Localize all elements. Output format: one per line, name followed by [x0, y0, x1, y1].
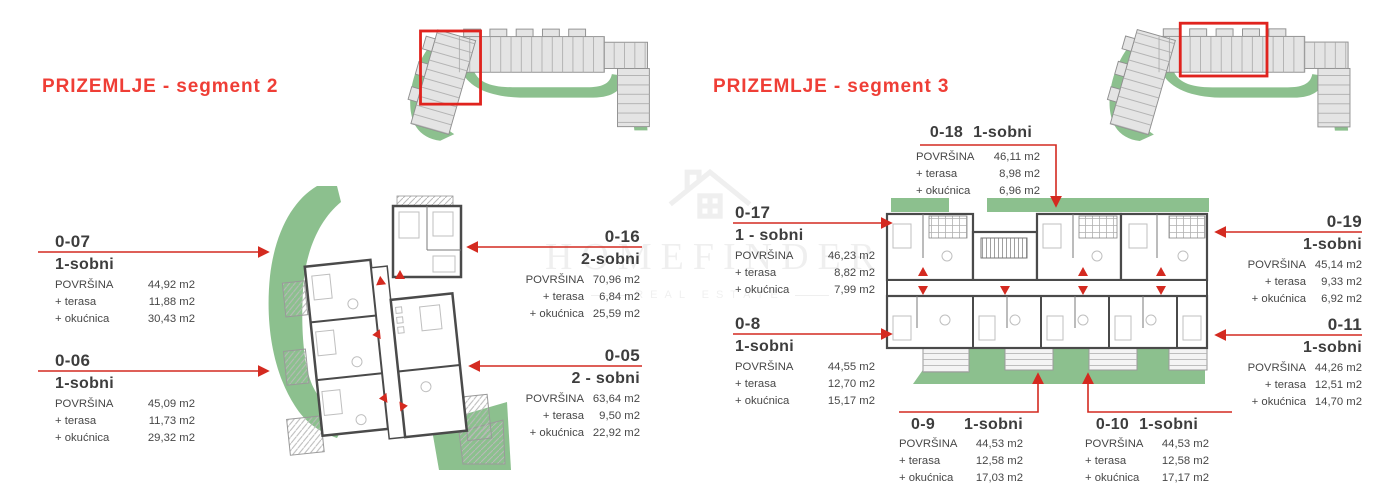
area-value: 6,96 m2 [988, 185, 1040, 198]
unit-areas: POVRŠINA44,53 m2 + terasa12,58 m2 + okuć… [899, 438, 1023, 485]
area-label: + terasa [1228, 379, 1306, 392]
area-label: POVRŠINA [55, 279, 137, 292]
unit-type: 1 - sobni [735, 227, 895, 244]
area-label: POVRŠINA [735, 361, 817, 374]
unit-card-0-05: 0-05 2 - sobni POVRŠINA63,64 m2 + terasa… [492, 347, 640, 440]
area-label: + okućnica [735, 395, 817, 408]
unit-areas: POVRŠINA46,11 m2 + terasa8,98 m2 + okućn… [916, 151, 1046, 198]
unit-type: 1-sobni [973, 124, 1032, 142]
unit-card-0-18: 0-18 1-sobni POVRŠINA46,11 m2 + terasa8,… [916, 124, 1046, 198]
area-value: 15,17 m2 [817, 395, 875, 408]
area-label: + terasa [506, 410, 584, 423]
area-value: 14,70 m2 [1306, 396, 1362, 409]
unit-type: 2-sobni [492, 251, 640, 268]
apartment-cluster [271, 249, 492, 459]
area-label: + terasa [506, 291, 584, 304]
area-value: 44,92 m2 [137, 279, 195, 292]
unit-title: 0-9 1-sobni [899, 416, 1023, 434]
area-label: + terasa [735, 378, 817, 391]
area-value: 63,64 m2 [584, 393, 640, 406]
unit-card-0-10: 0-10 1-sobni POVRŠINA44,53 m2 + terasa12… [1085, 416, 1209, 485]
unit-id: 0-11 [1214, 316, 1362, 334]
unit-id: 0-9 [911, 416, 935, 434]
unit-id: 0-17 [735, 204, 895, 222]
floor-plan-segment2 [253, 180, 513, 476]
unit-areas: POVRŠINA44,55 m2 + terasa12,70 m2 + okuć… [735, 361, 895, 408]
unit-areas: POVRŠINA45,14 m2 + terasa9,33 m2 + okućn… [1214, 259, 1362, 306]
area-label: + okućnica [506, 308, 584, 321]
unit-areas: POVRŠINA63,64 m2 + terasa9,50 m2 + okućn… [492, 393, 640, 440]
unit-type: 1-sobni [964, 416, 1023, 434]
unit-id: 0-8 [735, 315, 895, 333]
area-label: + terasa [735, 267, 817, 280]
area-label: POVRŠINA [506, 393, 584, 406]
area-label: + terasa [899, 455, 971, 468]
site-plan-thumbnail-segment2 [398, 10, 670, 142]
staircase [981, 238, 1027, 258]
area-label: + terasa [55, 415, 137, 428]
unit-card-0-8: 0-8 1-sobni POVRŠINA44,55 m2 + terasa12,… [735, 315, 895, 408]
area-label: POVRŠINA [899, 438, 971, 451]
unit-card-0-19: 0-19 1-sobni POVRŠINA45,14 m2 + terasa9,… [1214, 213, 1362, 306]
area-label: POVRŠINA [506, 274, 584, 287]
unit-card-0-11: 0-11 1-sobni POVRŠINA44,26 m2 + terasa12… [1214, 316, 1362, 409]
area-label: POVRŠINA [916, 151, 988, 164]
area-value: 45,09 m2 [137, 398, 195, 411]
area-value: 25,59 m2 [584, 308, 640, 321]
unit-title: 0-18 1-sobni [916, 124, 1046, 142]
area-value: 22,92 m2 [584, 427, 640, 440]
apartment-top-right [393, 196, 461, 279]
unit-card-0-16: 0-16 2-sobni POVRŠINA70,96 m2 + terasa6,… [492, 228, 640, 321]
unit-areas: POVRŠINA70,96 m2 + terasa6,84 m2 + okućn… [492, 274, 640, 321]
area-label: + terasa [916, 168, 988, 181]
unit-areas: POVRŠINA44,26 m2 + terasa12,51 m2 + okuć… [1214, 362, 1362, 409]
area-value: 46,23 m2 [817, 250, 875, 263]
area-label: POVRŠINA [1228, 362, 1306, 375]
area-value: 44,53 m2 [971, 438, 1023, 451]
area-value: 6,84 m2 [584, 291, 640, 304]
area-value: 8,82 m2 [817, 267, 875, 280]
section-title-segment2: PRIZEMLJE - segment 2 [42, 76, 278, 98]
area-value: 12,58 m2 [1157, 455, 1209, 468]
floor-plan-segment3 [883, 198, 1218, 398]
area-label: + terasa [1085, 455, 1157, 468]
area-label: POVRŠINA [735, 250, 817, 263]
unit-type: 1-sobni [735, 338, 895, 355]
unit-type: 1-sobni [55, 256, 215, 273]
unit-card-0-07: 0-07 1-sobni POVRŠINA44,92 m2 + terasa11… [55, 233, 215, 326]
unit-title: 0-10 1-sobni [1085, 416, 1209, 434]
area-value: 44,55 m2 [817, 361, 875, 374]
area-label: + okućnica [899, 472, 971, 485]
unit-areas: POVRŠINA46,23 m2 + terasa8,82 m2 + okućn… [735, 250, 895, 297]
unit-id: 0-18 [930, 124, 963, 142]
area-label: POVRŠINA [1228, 259, 1306, 272]
section-title-segment3: PRIZEMLJE - segment 3 [713, 76, 949, 98]
area-label: + okućnica [506, 427, 584, 440]
area-value: 17,17 m2 [1157, 472, 1209, 485]
area-value: 45,14 m2 [1306, 259, 1362, 272]
area-value: 11,88 m2 [137, 296, 195, 309]
area-value: 6,92 m2 [1306, 293, 1362, 306]
unit-type: 1-sobni [1139, 416, 1198, 434]
unit-id: 0-19 [1214, 213, 1362, 231]
area-value: 7,99 m2 [817, 284, 875, 297]
unit-type: 1-sobni [1214, 236, 1362, 253]
unit-card-0-06: 0-06 1-sobni POVRŠINA45,09 m2 + terasa11… [55, 352, 215, 445]
area-value: 46,11 m2 [988, 151, 1040, 164]
unit-type: 2 - sobni [492, 370, 640, 387]
area-label: + okućnica [1228, 396, 1306, 409]
area-value: 9,33 m2 [1306, 276, 1362, 289]
area-value: 44,26 m2 [1306, 362, 1362, 375]
area-value: 11,73 m2 [137, 415, 195, 428]
area-value: 9,50 m2 [584, 410, 640, 423]
area-value: 70,96 m2 [584, 274, 640, 287]
unit-type: 1-sobni [55, 375, 215, 392]
area-label: + okućnica [55, 313, 137, 326]
unit-type: 1-sobni [1214, 339, 1362, 356]
area-value: 8,98 m2 [988, 168, 1040, 181]
unit-id: 0-07 [55, 233, 215, 251]
area-label: POVRŠINA [55, 398, 137, 411]
site-plan-thumbnail-segment3 [1086, 10, 1382, 142]
unit-areas: POVRŠINA44,92 m2 + terasa11,88 m2 + okuć… [55, 279, 215, 326]
unit-card-0-17: 0-17 1 - sobni POVRŠINA46,23 m2 + terasa… [735, 204, 895, 297]
area-value: 17,03 m2 [971, 472, 1023, 485]
area-value: 30,43 m2 [137, 313, 195, 326]
area-value: 12,58 m2 [971, 455, 1023, 468]
area-label: + okućnica [55, 432, 137, 445]
area-label: + terasa [55, 296, 137, 309]
area-label: + okućnica [1228, 293, 1306, 306]
unit-areas: POVRŠINA45,09 m2 + terasa11,73 m2 + okuć… [55, 398, 215, 445]
unit-id: 0-05 [492, 347, 640, 365]
unit-id: 0-10 [1096, 416, 1129, 434]
area-label: + okućnica [916, 185, 988, 198]
unit-id: 0-06 [55, 352, 215, 370]
area-label: + terasa [1228, 276, 1306, 289]
area-value: 12,51 m2 [1306, 379, 1362, 392]
area-label: + okućnica [1085, 472, 1157, 485]
area-label: + okućnica [735, 284, 817, 297]
unit-areas: POVRŠINA44,53 m2 + terasa12,58 m2 + okuć… [1085, 438, 1209, 485]
area-value: 29,32 m2 [137, 432, 195, 445]
floorplan-page: HOMEFINDER REAL ESTATE PRIZEMLJE - segme… [0, 0, 1382, 488]
unit-id: 0-16 [492, 228, 640, 246]
area-label: POVRŠINA [1085, 438, 1157, 451]
unit-card-0-9: 0-9 1-sobni POVRŠINA44,53 m2 + terasa12,… [899, 416, 1023, 485]
area-value: 12,70 m2 [817, 378, 875, 391]
area-value: 44,53 m2 [1157, 438, 1209, 451]
